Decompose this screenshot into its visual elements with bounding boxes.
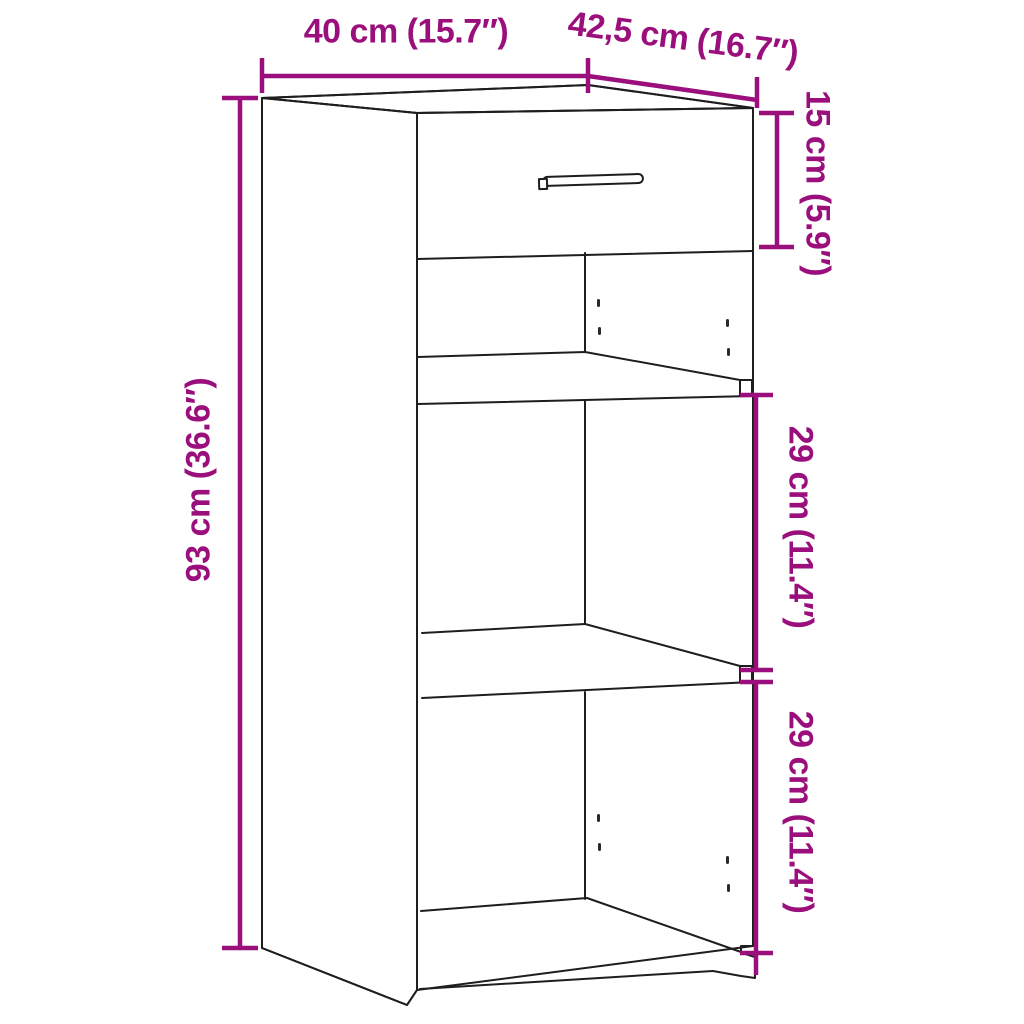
dimension-width-label: 40 cm (15.7″) (304, 13, 508, 52)
dimension-upper-shelf-label: 29 cm (11.4″) (781, 426, 820, 629)
cabinet-body (262, 85, 753, 1005)
cabinet-left-panel (262, 98, 417, 1005)
right-foot (713, 952, 755, 978)
dimension-lower-shelf-label: 29 cm (11.4″) (781, 711, 820, 914)
dimension-drawer-height-line (759, 113, 794, 247)
dimension-drawer-height-label: 15 cm (5.9″) (798, 90, 837, 276)
cabinet-line-art (0, 0, 1024, 1024)
dimension-total-height-line (222, 98, 258, 948)
dimension-total-height-label: 93 cm (36.6″) (180, 378, 219, 582)
dimension-diagram: 40 cm (15.7″) 42,5 cm (16.7″) 15 cm (5.9… (0, 0, 1024, 1024)
